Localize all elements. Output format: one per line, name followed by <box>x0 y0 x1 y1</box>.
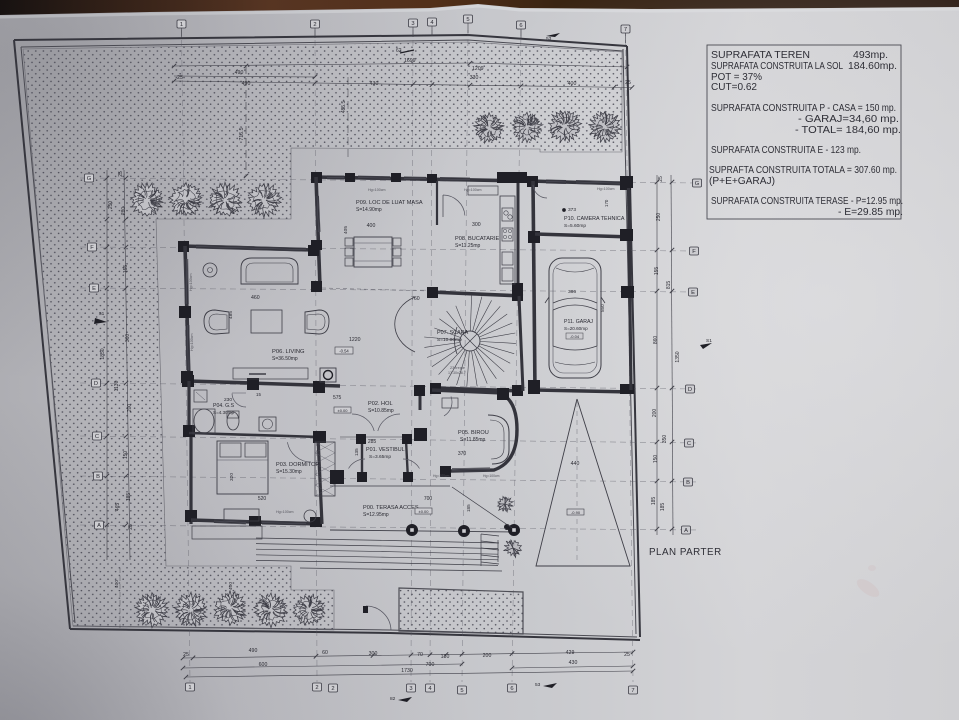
svg-text:P01. VESTIBUL: P01. VESTIBUL <box>366 447 405 453</box>
svg-text:D: D <box>688 387 692 393</box>
svg-text:386: 386 <box>568 289 576 295</box>
svg-text:Hg=100cm: Hg=100cm <box>276 510 293 514</box>
svg-text:25: 25 <box>128 524 134 530</box>
svg-text:- E=29.85 mp.: - E=29.85 mp. <box>838 207 903 218</box>
svg-text:285: 285 <box>368 439 377 445</box>
svg-text:2: 2 <box>331 686 334 692</box>
svg-text:185: 185 <box>126 493 132 502</box>
svg-text:1850: 1850 <box>100 348 106 359</box>
svg-text:600: 600 <box>259 662 268 668</box>
svg-text:430: 430 <box>569 660 578 666</box>
svg-text:200: 200 <box>127 404 133 413</box>
svg-text:2: 2 <box>315 685 318 691</box>
svg-text:C: C <box>687 441 691 447</box>
svg-text:S=3.65mp: S=3.65mp <box>369 454 391 460</box>
svg-text:70: 70 <box>417 652 423 658</box>
svg-text:1130: 1130 <box>114 380 120 391</box>
svg-text:C: C <box>95 434 99 440</box>
svg-text:P10. CAMERA TEHNICA: P10. CAMERA TEHNICA <box>564 216 625 222</box>
svg-text:±0.00: ±0.00 <box>338 408 349 413</box>
svg-text:17.30x28.7: 17.30x28.7 <box>448 371 466 375</box>
svg-text:S=15.30mp: S=15.30mp <box>276 469 302 475</box>
svg-text:520: 520 <box>258 496 267 502</box>
svg-text:155: 155 <box>123 265 129 274</box>
svg-text:SUPRAFATA TEREN: SUPRAFATA TEREN <box>711 50 810 61</box>
svg-text:360: 360 <box>125 334 131 343</box>
svg-text:2: 2 <box>313 22 316 28</box>
svg-text:B: B <box>96 474 100 480</box>
svg-text:25: 25 <box>177 75 183 81</box>
svg-text:550: 550 <box>600 304 605 312</box>
svg-text:S=20.60mp: S=20.60mp <box>564 326 588 331</box>
svg-text:Hg=100cm: Hg=100cm <box>433 474 450 478</box>
svg-text:150: 150 <box>123 451 129 460</box>
svg-text:±0.00: ±0.00 <box>419 509 430 514</box>
svg-text:6: 6 <box>510 686 513 692</box>
svg-text:E: E <box>92 286 96 292</box>
svg-text:25: 25 <box>658 176 664 182</box>
svg-text:82: 82 <box>390 696 396 702</box>
svg-text:860: 860 <box>653 336 659 345</box>
svg-text:320: 320 <box>229 473 235 481</box>
svg-text:- TOTAL= 184,60 mp.: - TOTAL= 184,60 mp. <box>795 125 901 136</box>
svg-text:184.60mp.: 184.60mp. <box>848 61 897 72</box>
svg-text:1730: 1730 <box>401 668 413 674</box>
svg-text:430: 430 <box>370 81 379 87</box>
svg-text:S=14.90mp: S=14.90mp <box>356 207 382 213</box>
svg-text:-0.54: -0.54 <box>339 349 349 354</box>
svg-text:350: 350 <box>662 435 668 444</box>
svg-text:400: 400 <box>367 223 376 229</box>
svg-text:200: 200 <box>652 409 658 418</box>
svg-text:373: 373 <box>568 207 576 213</box>
svg-text:60: 60 <box>322 650 328 656</box>
svg-text:280: 280 <box>121 207 127 216</box>
svg-text:PLAN PARTER: PLAN PARTER <box>649 547 722 558</box>
svg-text:760: 760 <box>411 296 420 302</box>
svg-text:493mp.: 493mp. <box>853 50 888 61</box>
svg-text:1699: 1699 <box>404 58 416 64</box>
svg-text:1: 1 <box>188 685 191 691</box>
svg-text:P06. LIVING: P06. LIVING <box>272 349 305 355</box>
svg-text:185: 185 <box>660 503 666 512</box>
svg-text:Hg=100cm: Hg=100cm <box>483 474 500 478</box>
svg-text:715.5: 715.5 <box>239 127 245 140</box>
svg-text:S1: S1 <box>706 338 712 344</box>
svg-text:P04. G.S: P04. G.S <box>213 403 235 409</box>
svg-text:53: 53 <box>546 36 552 42</box>
svg-text:1350: 1350 <box>675 351 681 362</box>
svg-text:F: F <box>692 249 696 255</box>
svg-text:Hg=100cm: Hg=100cm <box>597 187 614 191</box>
svg-text:185: 185 <box>651 497 657 506</box>
svg-text:P00. TERASA ACCES: P00. TERASA ACCES <box>363 505 419 511</box>
svg-text:400: 400 <box>228 582 234 590</box>
svg-text:575: 575 <box>333 395 342 401</box>
svg-text:G: G <box>87 176 92 182</box>
svg-text:15: 15 <box>256 392 261 397</box>
svg-text:25: 25 <box>625 80 631 86</box>
svg-text:485.5: 485.5 <box>341 101 347 114</box>
svg-text:P02. HOL: P02. HOL <box>368 401 393 407</box>
svg-text:5: 5 <box>460 688 463 694</box>
svg-text:23 trepte: 23 trepte <box>450 366 465 370</box>
svg-text:170: 170 <box>604 199 609 207</box>
svg-text:490: 490 <box>235 70 244 76</box>
svg-text:3: 3 <box>409 686 412 692</box>
svg-text:Hg=100cm: Hg=100cm <box>368 188 385 192</box>
svg-text:7: 7 <box>631 688 634 694</box>
svg-text:(P+E+GARAJ): (P+E+GARAJ) <box>709 176 775 187</box>
svg-text:300: 300 <box>369 651 378 657</box>
svg-text:53: 53 <box>535 682 541 688</box>
svg-text:7: 7 <box>624 27 627 33</box>
svg-text:490: 490 <box>249 648 258 654</box>
svg-text:F: F <box>90 245 94 251</box>
svg-text:700: 700 <box>426 662 435 668</box>
svg-text:1209: 1209 <box>472 66 484 72</box>
svg-text:P09. LOC DE LUAT MASA: P09. LOC DE LUAT MASA <box>356 200 423 206</box>
svg-text:Hg=100cm: Hg=100cm <box>464 188 481 192</box>
svg-text:S=36.50mp: S=36.50mp <box>272 356 298 362</box>
svg-text:815: 815 <box>666 281 672 290</box>
svg-text:3: 3 <box>411 21 414 27</box>
svg-text:S=10.85mp: S=10.85mp <box>368 408 394 414</box>
svg-text:SUPRAFATA CONSTRUITA E - 123 m: SUPRAFATA CONSTRUITA E - 123 mp. <box>711 145 861 156</box>
svg-text:E: E <box>691 290 695 296</box>
svg-text:5: 5 <box>466 17 469 23</box>
svg-text:440: 440 <box>571 461 580 467</box>
svg-text:429: 429 <box>566 650 575 656</box>
svg-text:25: 25 <box>624 652 630 658</box>
svg-text:150: 150 <box>653 455 659 464</box>
svg-text:700: 700 <box>424 496 433 502</box>
svg-text:SUPRAFTA CONSTRUITA TOTALA =: SUPRAFTA CONSTRUITA TOTALA = 307.60 mp. <box>709 165 897 176</box>
svg-text:1: 1 <box>180 22 183 28</box>
svg-text:-0.90: -0.90 <box>571 510 581 515</box>
svg-text:A: A <box>97 523 101 529</box>
svg-text:SUPRAFATA CONSTRUITA LA SOL: SUPRAFATA CONSTRUITA LA SOL <box>711 61 843 72</box>
svg-text:P08. BUCATARIE: P08. BUCATARIE <box>455 236 500 242</box>
svg-text:Hg=100cm: Hg=100cm <box>189 274 193 291</box>
svg-text:51: 51 <box>99 311 105 317</box>
svg-text:P11. GARAJ: P11. GARAJ <box>564 319 593 325</box>
svg-text:S=12.95mp: S=12.95mp <box>363 512 389 518</box>
svg-text:A: A <box>684 528 688 534</box>
svg-text:SUPRAFATA CONSTRUITA P - CASA: SUPRAFATA CONSTRUITA P - CASA = 150 mp. <box>711 103 896 114</box>
svg-text:460: 460 <box>251 295 260 301</box>
svg-text:250: 250 <box>108 201 114 210</box>
svg-text:1220: 1220 <box>349 337 361 343</box>
svg-text:-0.04: -0.04 <box>570 334 580 339</box>
svg-text:P03. DORMITOR: P03. DORMITOR <box>276 462 319 468</box>
svg-text:SUPRAFATA CONSTRUITA TERASE -: SUPRAFATA CONSTRUITA TERASE - P=12.95 mp… <box>711 196 903 207</box>
svg-text:S=10.00mp: S=10.00mp <box>437 337 462 343</box>
svg-text:6: 6 <box>519 23 522 29</box>
svg-text:Hg=100cm: Hg=100cm <box>190 334 194 351</box>
svg-text:330: 330 <box>470 75 479 81</box>
svg-text:155: 155 <box>654 267 660 276</box>
svg-text:- GARAJ=34,60 mp.: - GARAJ=34,60 mp. <box>798 114 899 125</box>
svg-text:P05. BIROU: P05. BIROU <box>458 430 489 436</box>
svg-text:S=5.60mp: S=5.60mp <box>564 223 586 229</box>
svg-text:B: B <box>686 480 690 486</box>
svg-text:400: 400 <box>568 81 577 87</box>
svg-text:P07. SCARA: P07. SCARA <box>437 330 469 336</box>
svg-text:465: 465 <box>115 503 121 512</box>
svg-text:D: D <box>94 381 98 387</box>
svg-text:135: 135 <box>354 448 359 456</box>
svg-text:370: 370 <box>458 451 467 457</box>
svg-text:S=11.25mp: S=11.25mp <box>455 243 481 249</box>
svg-text:405: 405 <box>343 226 349 234</box>
svg-text:25: 25 <box>183 652 189 658</box>
svg-text:130: 130 <box>441 654 450 660</box>
svg-text:185: 185 <box>466 504 471 512</box>
svg-text:250: 250 <box>656 213 662 222</box>
svg-text:400: 400 <box>114 580 120 588</box>
svg-text:200: 200 <box>483 653 492 659</box>
svg-text:G: G <box>695 181 700 187</box>
svg-text:25: 25 <box>118 171 124 177</box>
svg-text:300: 300 <box>472 222 481 228</box>
svg-text:CUT=0.62: CUT=0.62 <box>711 82 757 93</box>
svg-text:S=11.85mp: S=11.85mp <box>460 437 486 443</box>
